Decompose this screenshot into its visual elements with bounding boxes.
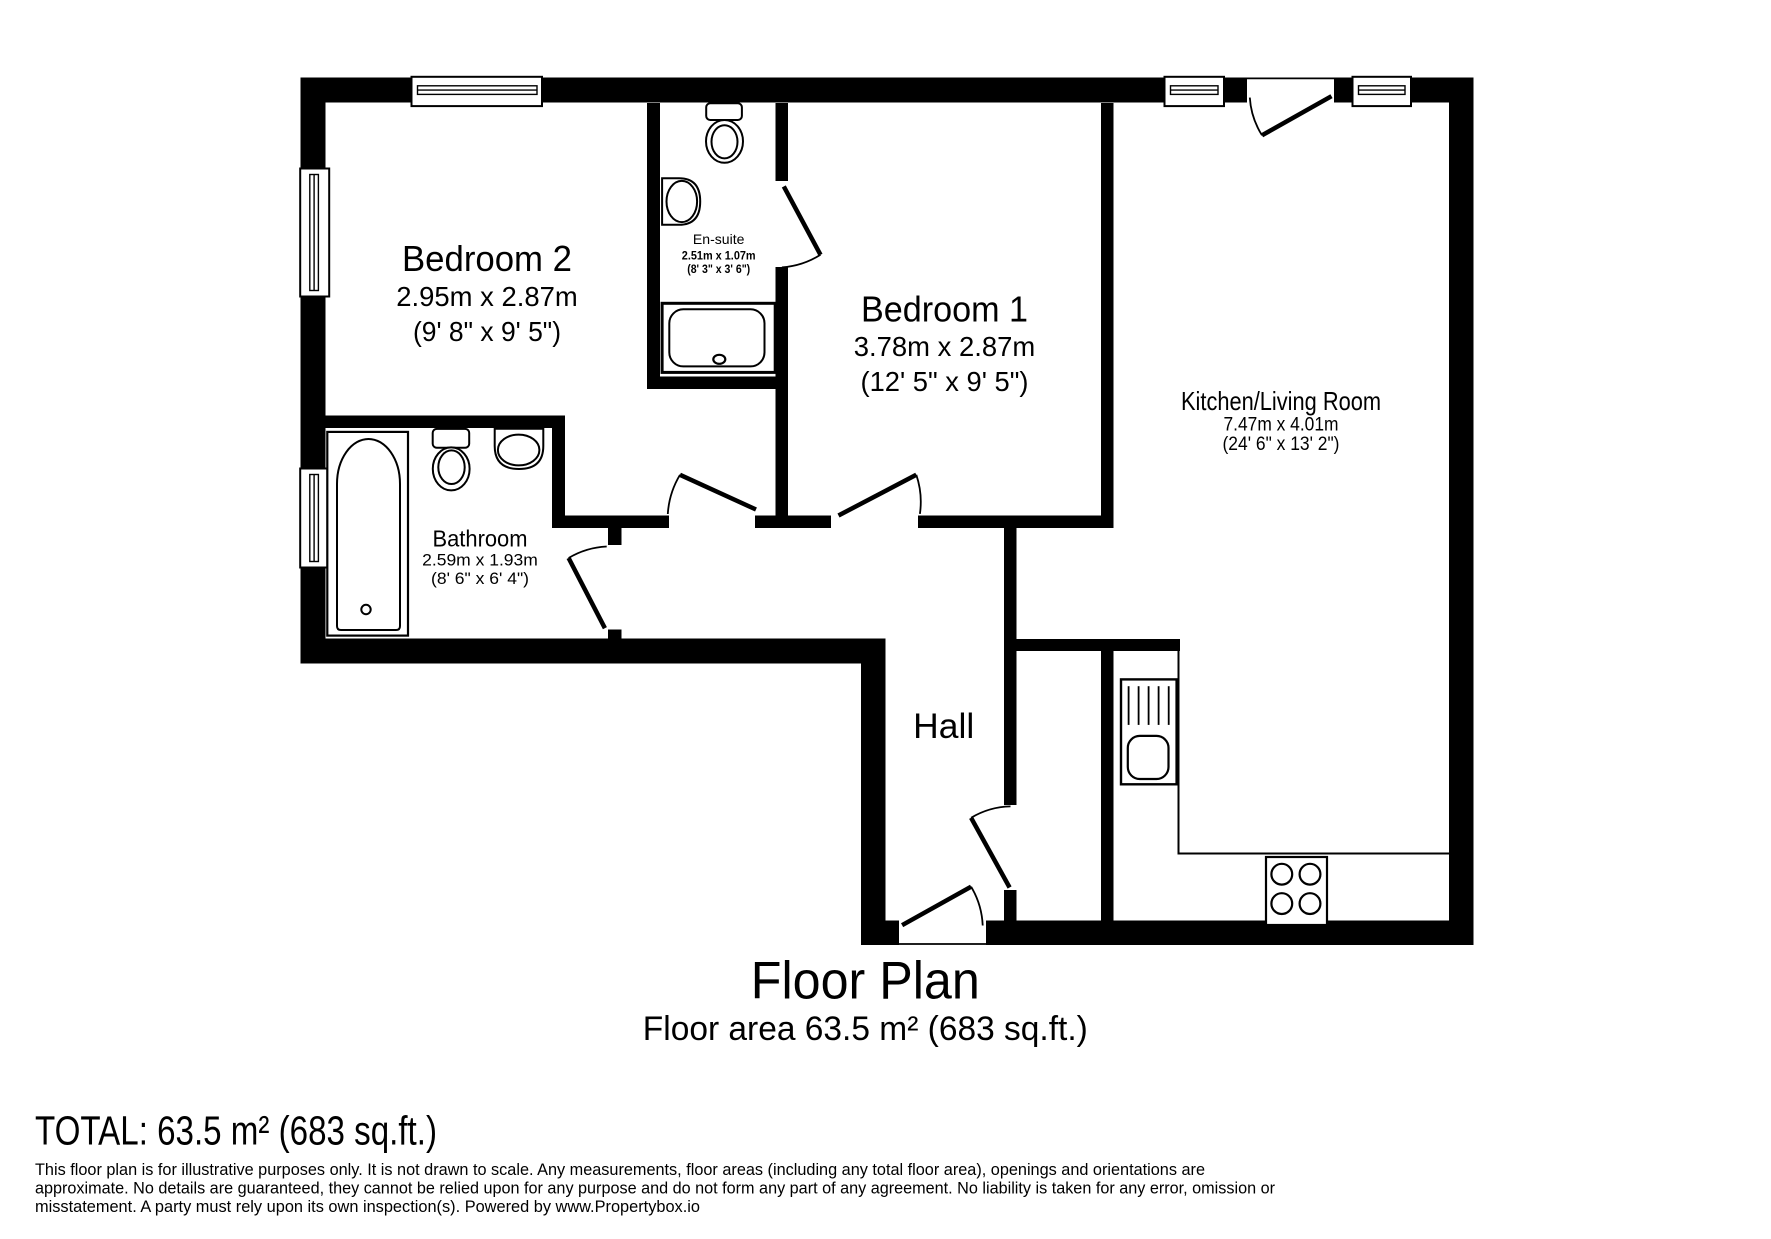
svg-text:3.78m x 2.87m: 3.78m x 2.87m <box>854 331 1036 362</box>
svg-text:7.47m x 4.01m: 7.47m x 4.01m <box>1224 415 1339 436</box>
svg-text:Bedroom 2: Bedroom 2 <box>402 238 572 279</box>
svg-text:2.95m x 2.87m: 2.95m x 2.87m <box>396 281 578 312</box>
svg-text:Bathroom: Bathroom <box>433 526 528 552</box>
svg-text:(12' 5" x 9' 5"): (12' 5" x 9' 5") <box>861 366 1029 397</box>
svg-text:Floor area 63.5 m² (683 sq.ft.: Floor area 63.5 m² (683 sq.ft.) <box>643 1010 1088 1048</box>
svg-text:This floor plan is for illustr: This floor plan is for illustrative purp… <box>35 1160 1205 1179</box>
svg-text:(24' 6" x 13' 2"): (24' 6" x 13' 2") <box>1223 434 1340 455</box>
svg-text:(8' 6" x 6' 4"): (8' 6" x 6' 4") <box>431 570 529 588</box>
svg-text:Kitchen/Living Room: Kitchen/Living Room <box>1181 386 1381 416</box>
svg-text:Hall: Hall <box>913 707 974 746</box>
svg-text:Floor Plan: Floor Plan <box>751 952 980 1011</box>
svg-text:misstatement. A party must rel: misstatement. A party must rely upon its… <box>35 1197 700 1216</box>
svg-text:2.59m x 1.93m: 2.59m x 1.93m <box>422 551 538 569</box>
svg-text:approximate. No details are gu: approximate. No details are guaranteed, … <box>35 1179 1275 1198</box>
svg-text:TOTAL: 63.5 m² (683 sq.ft.): TOTAL: 63.5 m² (683 sq.ft.) <box>35 1108 437 1154</box>
svg-text:2.51m x 1.07m: 2.51m x 1.07m <box>682 248 756 262</box>
svg-text:(8' 3" x 3' 6"): (8' 3" x 3' 6") <box>687 262 750 276</box>
svg-text:(9' 8" x 9' 5"): (9' 8" x 9' 5") <box>413 316 561 347</box>
svg-text:Bedroom 1: Bedroom 1 <box>861 289 1028 330</box>
svg-text:En-suite: En-suite <box>693 231 745 247</box>
